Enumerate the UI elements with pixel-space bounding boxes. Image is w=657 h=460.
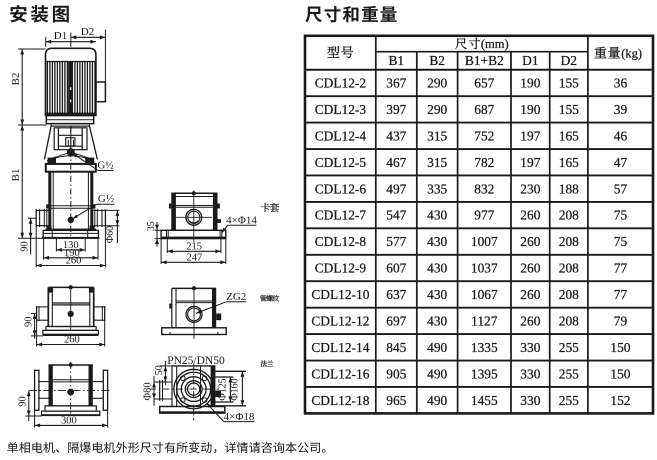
svg-text:977: 977	[474, 208, 494, 223]
svg-text:752: 752	[474, 128, 494, 143]
svg-text:260: 260	[520, 234, 540, 249]
svg-text:290: 290	[427, 102, 447, 117]
svg-text:845: 845	[386, 340, 406, 355]
svg-text:CDL12-16: CDL12-16	[311, 366, 369, 381]
svg-text:CDL12-10: CDL12-10	[311, 287, 369, 302]
svg-text:(mm): (mm)	[481, 37, 509, 51]
svg-text:330: 330	[520, 366, 540, 381]
svg-text:47: 47	[614, 155, 628, 170]
svg-text:437: 437	[386, 128, 406, 143]
svg-text:697: 697	[386, 313, 406, 328]
svg-text:1455: 1455	[471, 393, 498, 408]
svg-text:330: 330	[520, 393, 540, 408]
svg-text:290: 290	[427, 76, 447, 91]
svg-text:CDL12-18: CDL12-18	[311, 393, 369, 408]
svg-text:190: 190	[520, 102, 540, 117]
svg-text:547: 547	[386, 208, 406, 223]
svg-text:247: 247	[187, 252, 203, 263]
svg-text:CDL12-9: CDL12-9	[315, 261, 367, 276]
svg-text:CDL12-5: CDL12-5	[315, 155, 367, 170]
svg-text:255: 255	[559, 340, 579, 355]
svg-text:D1: D1	[54, 30, 67, 42]
svg-text:150: 150	[610, 366, 630, 381]
svg-text:35: 35	[146, 221, 157, 231]
svg-text:490: 490	[427, 340, 447, 355]
svg-text:197: 197	[520, 128, 540, 143]
svg-text:215: 215	[186, 241, 202, 252]
svg-text:152: 152	[610, 393, 630, 408]
svg-text:208: 208	[559, 261, 579, 276]
svg-text:335: 335	[427, 181, 447, 196]
svg-text:832: 832	[474, 181, 494, 196]
svg-text:(kg): (kg)	[621, 47, 642, 61]
svg-text:Φ160: Φ160	[230, 378, 241, 400]
svg-text:490: 490	[427, 366, 447, 381]
svg-text:330: 330	[520, 340, 540, 355]
svg-text:197: 197	[520, 155, 540, 170]
svg-text:90: 90	[20, 241, 31, 252]
svg-text:1067: 1067	[471, 287, 498, 302]
svg-text:1395: 1395	[471, 366, 498, 381]
svg-text:255: 255	[559, 366, 579, 381]
svg-text:490: 490	[427, 393, 447, 408]
svg-text:260: 260	[520, 313, 540, 328]
svg-text:1007: 1007	[471, 234, 498, 249]
svg-text:D1: D1	[522, 53, 538, 68]
svg-text:ZG2: ZG2	[226, 291, 246, 303]
svg-text:965: 965	[386, 393, 406, 408]
svg-text:CDL12-6: CDL12-6	[315, 181, 367, 196]
svg-text:1127: 1127	[471, 313, 498, 328]
svg-text:260: 260	[520, 208, 540, 223]
svg-text:CDL12-4: CDL12-4	[315, 128, 367, 143]
svg-text:79: 79	[614, 313, 628, 328]
svg-text:39: 39	[614, 102, 628, 117]
svg-text:315: 315	[427, 155, 447, 170]
svg-text:Φ80: Φ80	[142, 382, 153, 400]
svg-text:CDL12-7: CDL12-7	[315, 208, 367, 223]
svg-text:190: 190	[520, 76, 540, 91]
svg-text:B1: B1	[388, 53, 404, 68]
svg-text:CDL12-2: CDL12-2	[315, 76, 366, 91]
svg-text:367: 367	[386, 76, 406, 91]
svg-text:50: 50	[154, 365, 165, 375]
svg-text:430: 430	[427, 234, 447, 249]
svg-text:188: 188	[559, 181, 579, 196]
svg-text:G½: G½	[98, 193, 114, 205]
svg-text:782: 782	[474, 155, 494, 170]
svg-text:430: 430	[427, 287, 447, 302]
svg-text:G½: G½	[97, 159, 113, 171]
svg-text:36: 36	[614, 76, 628, 91]
svg-text:397: 397	[386, 102, 406, 117]
svg-text:B2: B2	[429, 53, 445, 68]
svg-text:155: 155	[559, 76, 579, 91]
svg-text:687: 687	[474, 102, 494, 117]
svg-text:657: 657	[474, 76, 494, 91]
svg-text:77: 77	[614, 287, 628, 302]
svg-text:165: 165	[559, 155, 579, 170]
svg-text:300: 300	[61, 416, 77, 427]
svg-text:CDL12-14: CDL12-14	[311, 340, 369, 355]
svg-text:1335: 1335	[471, 340, 498, 355]
svg-text:260: 260	[520, 287, 540, 302]
svg-text:CDL12-8: CDL12-8	[315, 234, 367, 249]
svg-text:75: 75	[614, 208, 628, 223]
svg-text:260: 260	[64, 335, 80, 346]
svg-text:577: 577	[386, 234, 406, 249]
svg-text:D2: D2	[561, 53, 577, 68]
svg-text:150: 150	[610, 340, 630, 355]
svg-text:90: 90	[18, 396, 29, 407]
svg-text:497: 497	[386, 181, 406, 196]
svg-text:90: 90	[23, 317, 34, 328]
svg-text:208: 208	[559, 287, 579, 302]
svg-text:165: 165	[559, 128, 579, 143]
svg-text:260: 260	[520, 261, 540, 276]
svg-text:607: 607	[386, 261, 406, 276]
svg-text:B1+B2: B1+B2	[465, 53, 504, 68]
svg-text:D2: D2	[81, 26, 94, 38]
svg-text:CDL12-3: CDL12-3	[315, 102, 367, 117]
svg-text:637: 637	[386, 287, 406, 302]
svg-text:57: 57	[614, 181, 628, 196]
svg-text:208: 208	[559, 234, 579, 249]
svg-text:208: 208	[559, 208, 579, 223]
svg-text:315: 315	[427, 128, 447, 143]
svg-text:255: 255	[559, 393, 579, 408]
svg-text:B1: B1	[10, 169, 22, 182]
svg-text:430: 430	[427, 208, 447, 223]
svg-text:208: 208	[559, 313, 579, 328]
svg-text:1037: 1037	[471, 261, 498, 276]
svg-text:Φ60: Φ60	[105, 226, 116, 243]
svg-text:Φ125: Φ125	[217, 378, 228, 400]
svg-text:CDL12-12: CDL12-12	[311, 313, 369, 328]
svg-text:430: 430	[427, 261, 447, 276]
svg-text:155: 155	[559, 102, 579, 117]
svg-text:46: 46	[614, 128, 628, 143]
svg-text:230: 230	[520, 181, 540, 196]
svg-text:B2: B2	[10, 73, 22, 86]
svg-text:905: 905	[386, 366, 406, 381]
svg-text:77: 77	[614, 261, 628, 276]
svg-text:75: 75	[614, 234, 628, 249]
svg-text:430: 430	[427, 313, 447, 328]
svg-text:260: 260	[66, 256, 82, 267]
svg-text:467: 467	[386, 155, 406, 170]
